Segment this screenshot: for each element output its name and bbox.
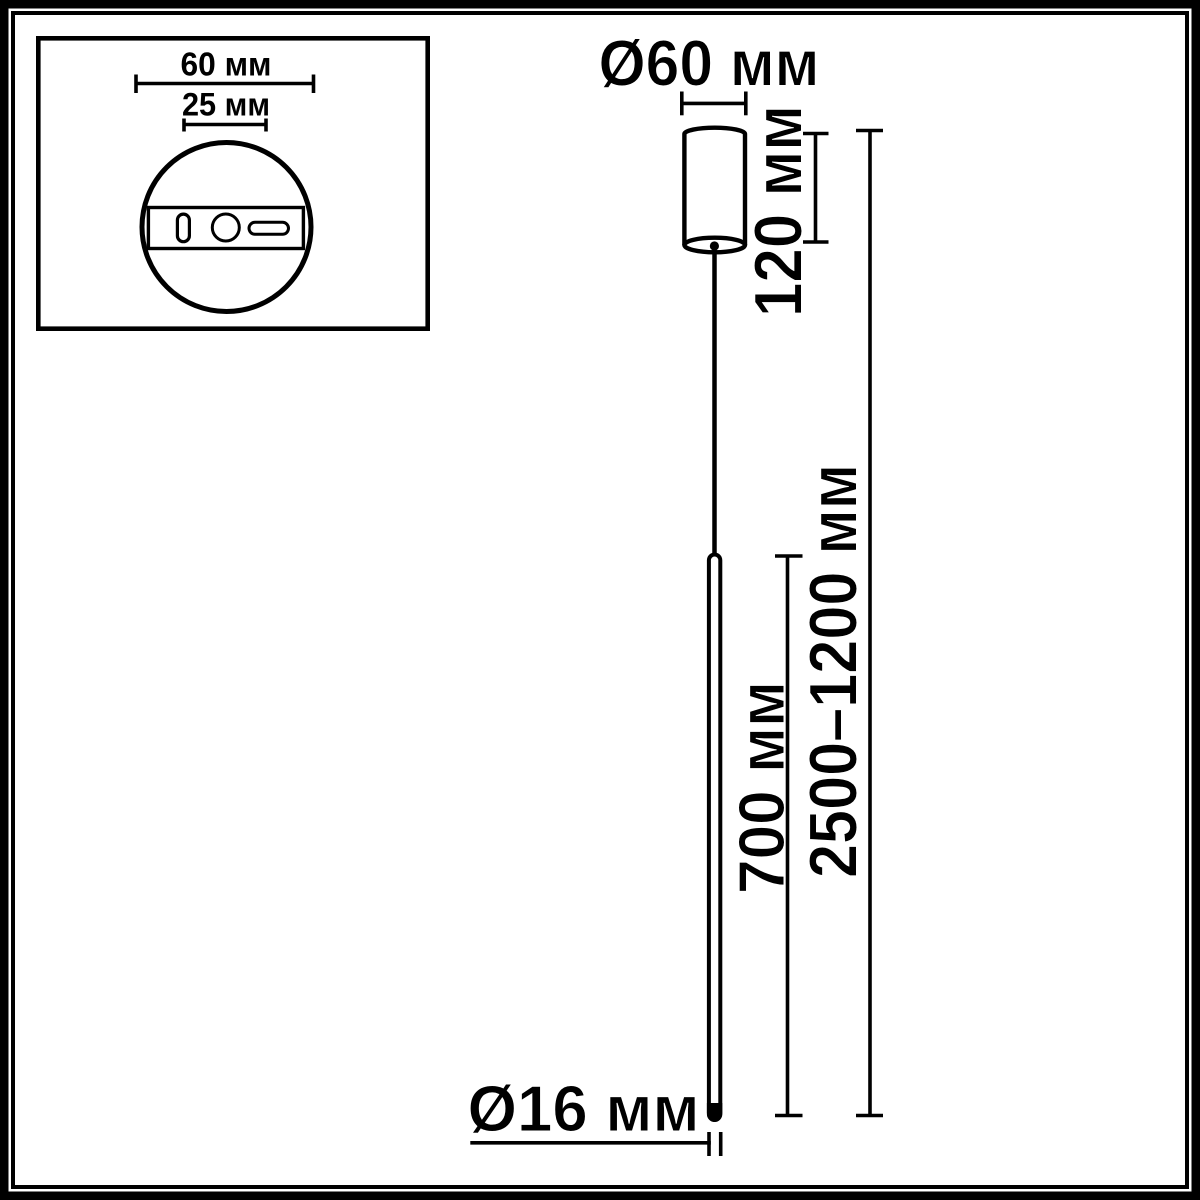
svg-text:25 мм: 25 мм: [182, 87, 270, 123]
svg-text:2500–1200 мм: 2500–1200 мм: [796, 464, 872, 878]
svg-text:60 мм: 60 мм: [181, 46, 272, 83]
svg-text:Ø16 мм: Ø16 мм: [468, 1072, 700, 1145]
svg-text:120 мм: 120 мм: [741, 105, 817, 317]
svg-text:Ø60 мм: Ø60 мм: [599, 27, 820, 100]
